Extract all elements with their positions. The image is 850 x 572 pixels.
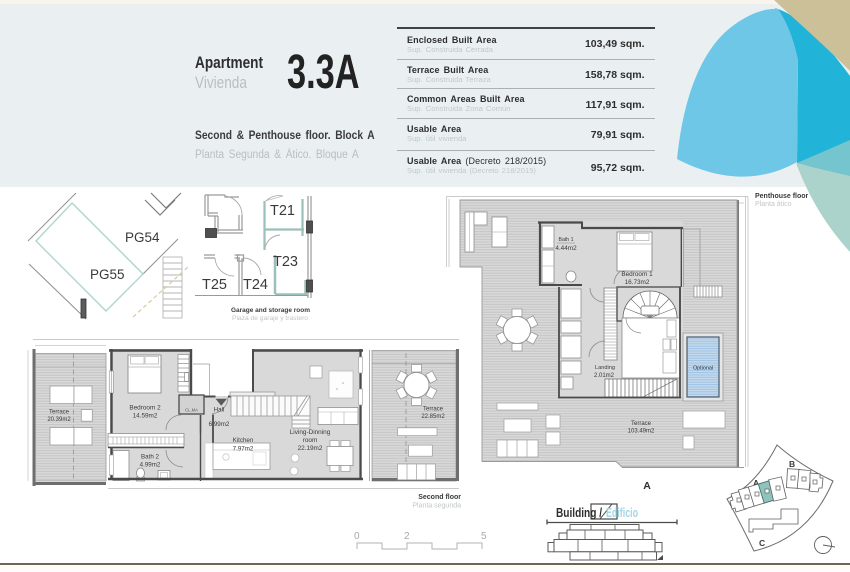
svg-text:T21: T21 (270, 203, 295, 219)
svg-text:16.73m2: 16.73m2 (625, 279, 650, 286)
svg-text:Edificio: Edificio (606, 506, 638, 520)
svg-text:PG55: PG55 (90, 267, 125, 282)
svg-text:7.97m2: 7.97m2 (233, 446, 254, 453)
svg-text:Plaza de garaje y trastero: Plaza de garaje y trastero (232, 315, 308, 322)
svg-text:5: 5 (481, 531, 487, 542)
svg-text:103.49m2: 103.49m2 (628, 429, 655, 435)
svg-text:room: room (303, 437, 318, 444)
svg-text:4.44m2: 4.44m2 (555, 245, 577, 252)
svg-text:6.99m2: 6.99m2 (209, 421, 230, 428)
svg-text:Building /: Building / (556, 506, 602, 520)
svg-text:Terrace: Terrace (423, 407, 444, 413)
svg-text:22.85m2: 22.85m2 (421, 414, 445, 420)
svg-text:Bath 2: Bath 2 (141, 454, 159, 461)
svg-text:Bath 1: Bath 1 (559, 237, 574, 243)
svg-text:22.19m2: 22.19m2 (298, 445, 323, 452)
svg-text:14.59m2: 14.59m2 (133, 413, 158, 420)
svg-text:Kitchen: Kitchen (233, 437, 254, 444)
svg-text:Terrace: Terrace (631, 421, 652, 427)
svg-text:Bedroom 2: Bedroom 2 (129, 405, 161, 412)
svg-text:Planta segunda: Planta segunda (412, 503, 461, 510)
svg-text:B: B (789, 459, 795, 469)
svg-text:2: 2 (404, 531, 410, 542)
svg-text:Hall: Hall (214, 407, 225, 414)
svg-text:4.99m2: 4.99m2 (140, 462, 161, 469)
svg-text:Living-Dinning: Living-Dinning (290, 429, 331, 436)
svg-text:CL.MA: CL.MA (185, 408, 198, 413)
svg-text:20.39m2: 20.39m2 (47, 417, 71, 423)
svg-text:2.01m2: 2.01m2 (594, 373, 615, 379)
svg-text:T25: T25 (202, 277, 227, 293)
svg-text:PG54: PG54 (125, 230, 160, 245)
svg-text:Landing: Landing (595, 365, 615, 371)
svg-text:T23: T23 (273, 254, 298, 270)
svg-text:A: A (643, 480, 651, 492)
svg-text:Bedroom 1: Bedroom 1 (621, 271, 653, 278)
svg-text:Garage and storage room: Garage and storage room (231, 307, 310, 314)
svg-text:Second floor: Second floor (418, 494, 461, 501)
svg-text:Optional: Optional (693, 366, 713, 372)
svg-text:Terrace: Terrace (49, 410, 70, 416)
svg-text:0: 0 (354, 531, 360, 542)
svg-text:C: C (759, 538, 765, 548)
svg-text:T24: T24 (243, 277, 268, 293)
